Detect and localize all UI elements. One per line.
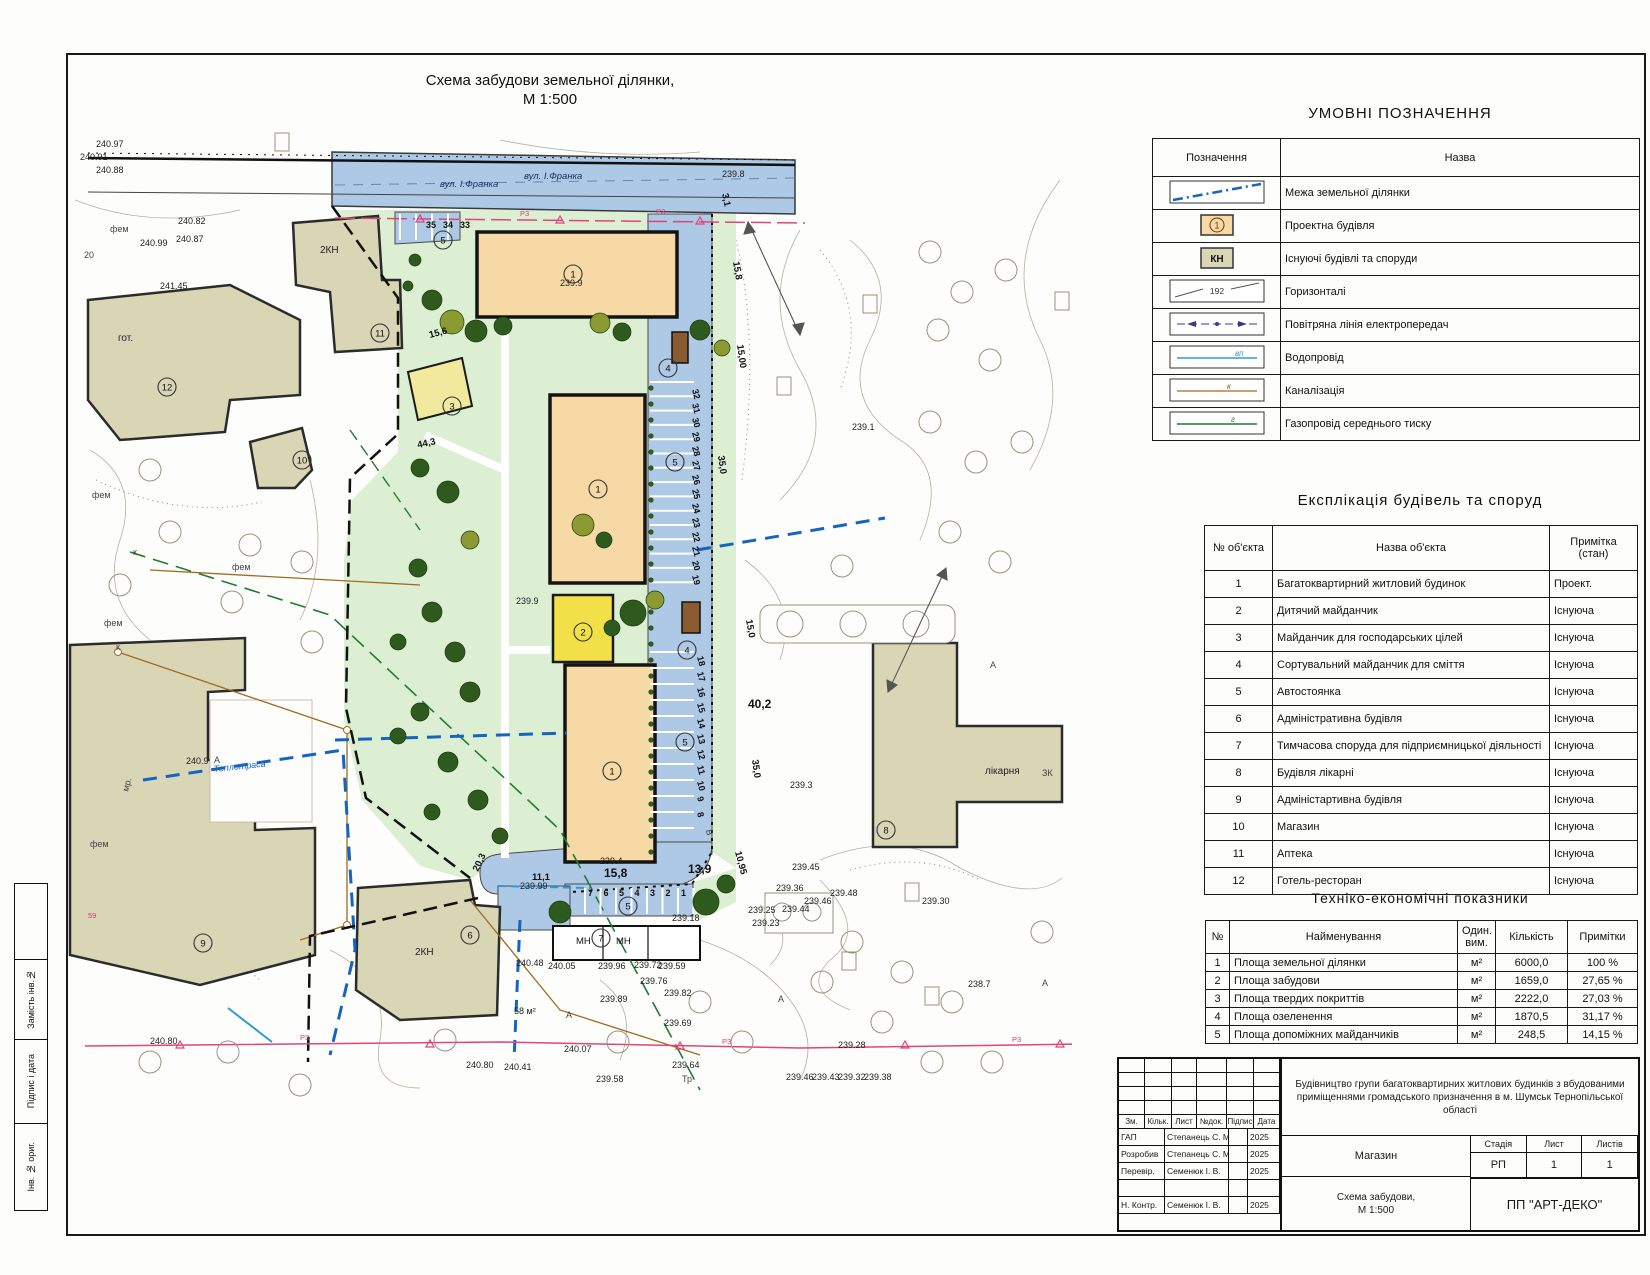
object-marker-number: 4 <box>665 364 670 375</box>
map-label: А <box>566 1010 572 1020</box>
map-label: А <box>778 994 784 1004</box>
map-label: фем <box>232 562 251 572</box>
object-number: 3 <box>1205 625 1273 652</box>
map-label: 240.07 <box>564 1044 592 1054</box>
legend-row-name: Повітряна лінія електропередач <box>1281 309 1640 342</box>
indicator-row: 2 Площа забудови м² 1659,0 27,65 % <box>1206 972 1638 990</box>
sig-name: Семенюк І. В. <box>1165 1163 1229 1180</box>
map-label: 239.4 <box>600 856 623 866</box>
pad-4-waste-b <box>682 602 700 633</box>
indicator-note: 31,17 % <box>1568 1008 1638 1026</box>
sig-signature <box>1229 1163 1248 1180</box>
symbol-existing-building: КН <box>1153 243 1281 276</box>
sig-name: Степанець С. М. <box>1165 1146 1229 1163</box>
object-marker-number: 5 <box>625 902 630 913</box>
map-label: 239.99 <box>520 881 548 891</box>
symbol-water: вп <box>1153 342 1281 375</box>
indicator-number: 5 <box>1206 1026 1230 1044</box>
stamp-label: Підпис і дата <box>26 1054 36 1108</box>
ind-col-name: Найменування <box>1230 921 1458 954</box>
map-label: 239.69 <box>664 1018 692 1028</box>
map-label: 239.38 <box>864 1072 892 1082</box>
map-label: вул. І.Франка <box>524 171 582 182</box>
map-label: 239.3 <box>790 780 813 790</box>
legend-row-name: Газопровід середнього тиску <box>1281 408 1640 441</box>
object-name: Адміністративна будівля <box>1273 706 1550 733</box>
explication-title: Експлікація будівель та споруд <box>1240 492 1600 509</box>
stage-block: Стадія Лист Листів РП 1 1 ПП "АРТ-ДЕКО" <box>1471 1136 1638 1230</box>
drawing-sheet: Замість інв.№ Підпис і дата Інв. № ориг.… <box>0 0 1650 1275</box>
indicator-qty: 1870,5 <box>1496 1008 1568 1026</box>
object-marker-number: 1 <box>570 270 575 281</box>
stall-number: 2 <box>666 888 671 898</box>
object-status: Існуюча <box>1550 679 1638 706</box>
object-marker-number: 9 <box>200 939 205 950</box>
sig-date <box>1248 1180 1280 1197</box>
water-line-2 <box>228 1008 272 1042</box>
sheets-value: 1 <box>1582 1153 1638 1178</box>
sheets-label: Листів <box>1582 1136 1638 1152</box>
title-block-right: Будівництво групи багатоквартирних житло… <box>1282 1059 1638 1230</box>
ind-col-num: № <box>1206 921 1230 954</box>
map-label: 241.45 <box>160 281 188 291</box>
building-12-hotel <box>88 285 300 440</box>
boundary-blue-3 <box>514 920 520 1060</box>
map-label: 240.9 <box>186 756 209 766</box>
explication-row: 4 Сортувальний майданчик для сміття Існу… <box>1205 652 1638 679</box>
building-1c <box>565 665 655 862</box>
indicator-qty: 2222,0 <box>1496 990 1568 1008</box>
object-number: 5 <box>1205 679 1273 706</box>
stage-value: РП <box>1471 1153 1527 1178</box>
indicator-note: 100 % <box>1568 954 1638 972</box>
map-label: 240.87 <box>176 234 204 244</box>
explication-row: 8 Будівля лікарні Існуюча <box>1205 760 1638 787</box>
legend-row-name: Існуючі будівлі та споруди <box>1281 243 1640 276</box>
map-label: 34 <box>443 220 453 230</box>
map-label: 239.43 <box>812 1072 840 1082</box>
sig-date: 2025 <box>1248 1163 1280 1180</box>
object-name: Аптека <box>1273 841 1550 868</box>
map-label: 15,8 <box>604 866 628 880</box>
indicator-number: 3 <box>1206 990 1230 1008</box>
indicator-row: 4 Площа озеленення м² 1870,5 31,17 % <box>1206 1008 1638 1026</box>
map-label: А <box>1042 978 1048 988</box>
map-label: Р3 <box>722 1037 731 1046</box>
sig-role <box>1119 1180 1165 1197</box>
object-marker-number: 1 <box>595 485 600 496</box>
indicator-unit: м² <box>1458 1008 1496 1026</box>
map-label: фем <box>104 618 123 628</box>
ind-col-unit: Один. вим. <box>1458 921 1496 954</box>
object-status: Існуюча <box>1550 652 1638 679</box>
indicator-number: 4 <box>1206 1008 1230 1026</box>
map-label: 239.89 <box>600 994 628 1004</box>
symbol-sewer: к <box>1153 375 1281 408</box>
object-number: 10 <box>1205 814 1273 841</box>
legend-row-name: Водопровід <box>1281 342 1640 375</box>
map-label: фем <box>110 224 129 234</box>
explication-col-num: № об'єкта <box>1205 526 1273 571</box>
sig-header-row: Зм.Кільк.Лист№док.ПідписДата <box>1119 1115 1280 1129</box>
map-label: 239.9 <box>516 596 539 606</box>
explication-row: 9 Адміністартивна будівля Існуюча <box>1205 787 1638 814</box>
object-number: 8 <box>1205 760 1273 787</box>
map-label: Р3 <box>1012 1035 1021 1044</box>
map-label: к <box>116 642 120 652</box>
map-label: 240.88 <box>96 165 124 175</box>
legend-table: Позначення Назва Межа земельної ділянки … <box>1152 138 1640 441</box>
title-block: Зм.Кільк.Лист№док.ПідписДата ГАП Степане… <box>1117 1057 1640 1232</box>
svg-text:1: 1 <box>1214 220 1219 230</box>
ind-col-qty: Кількість <box>1496 921 1568 954</box>
indicator-unit: м² <box>1458 972 1496 990</box>
map-label: 240.05 <box>548 961 576 971</box>
stall-number: 3 <box>650 888 655 898</box>
sig-date: 2025 <box>1248 1197 1280 1214</box>
object-name: Сортувальний майданчик для сміття <box>1273 652 1550 679</box>
map-label: лікарня <box>985 766 1020 777</box>
map-label: фем <box>92 490 111 500</box>
site-plan-map: вул. І.Франкавул. І.Франка239.8240.97240… <box>68 112 1072 1112</box>
object-status: Існуюча <box>1550 598 1638 625</box>
object-marker-number: 1 <box>609 767 614 778</box>
object-number: 9 <box>1205 787 1273 814</box>
object-name: Дитячий майданчик <box>1273 598 1550 625</box>
object-marker-number: 12 <box>162 383 173 394</box>
object-name: Будівля лікарні <box>1273 760 1550 787</box>
map-label: 240.99 <box>140 238 168 248</box>
explication-row: 3 Майданчик для господарських цілей Існу… <box>1205 625 1638 652</box>
map-label: 239.58 <box>596 1074 624 1084</box>
sig-signature <box>1229 1197 1248 1214</box>
object-marker-number: 3 <box>449 402 454 413</box>
stall-number: 7 <box>588 888 593 898</box>
sig-signature <box>1229 1129 1248 1146</box>
object-marker-number: 8 <box>883 826 888 837</box>
object-name: Автостоянка <box>1273 679 1550 706</box>
legend-col-name: Назва <box>1281 139 1640 177</box>
map-label: 2КН <box>415 947 434 958</box>
map-label: МН <box>576 936 591 947</box>
stamp-box-zamist: Замість інв.№ <box>14 959 48 1039</box>
map-label: Р3 <box>656 207 665 216</box>
map-label: 240.80 <box>150 1036 178 1046</box>
indicator-row: 3 Площа твердих покриттів м² 2222,0 27,0… <box>1206 990 1638 1008</box>
indicator-row: 5 Площа допоміжних майданчиків м² 248,5 … <box>1206 1026 1638 1044</box>
object-name: Майданчик для господарських цілей <box>1273 625 1550 652</box>
legend-row-name: Межа земельної ділянки <box>1281 177 1640 210</box>
map-label: 13,9 <box>688 862 712 876</box>
sig-header: Підпис <box>1227 1115 1254 1129</box>
indicator-name: Площа забудови <box>1230 972 1458 990</box>
indicators-title: Техніко-економічні показники <box>1250 890 1590 906</box>
explication-col-name: Назва об'єкта <box>1273 526 1550 571</box>
object-status: Існуюча <box>1550 841 1638 868</box>
stamp-label: Інв. № ориг. <box>26 1142 36 1191</box>
map-label: 239.96 <box>598 961 626 971</box>
legend-row-name: Горизонталі <box>1281 276 1640 309</box>
sheet-value: 1 <box>1527 1153 1583 1178</box>
stamp-box-inv: Інв. № ориг. <box>14 1123 48 1211</box>
svg-text:КН: КН <box>1210 254 1223 265</box>
object-status: Існуюча <box>1550 814 1638 841</box>
map-label: 239.82 <box>664 988 692 998</box>
object-number: 6 <box>1205 706 1273 733</box>
object-status: Проект. <box>1550 571 1638 598</box>
legend-col-symbol: Позначення <box>1153 139 1281 177</box>
sig-rows: ГАП Степанець С. М. 2025 Розробив Степан… <box>1119 1129 1280 1214</box>
indicator-name: Площа твердих покриттів <box>1230 990 1458 1008</box>
indicator-qty: 1659,0 <box>1496 972 1568 990</box>
indicator-unit: м² <box>1458 1026 1496 1044</box>
indicator-qty: 6000,0 <box>1496 954 1568 972</box>
map-label: 240.82 <box>178 216 206 226</box>
map-label: А <box>990 660 996 670</box>
explication-row: 1 Багатоквартирний житловий будинок Прое… <box>1205 571 1638 598</box>
map-label: 239.32 <box>838 1072 866 1082</box>
map-label: 239.36 <box>776 883 804 893</box>
building-8-hospital <box>873 643 1062 847</box>
sig-signature <box>1229 1146 1248 1163</box>
map-label: 239.25 <box>748 905 776 915</box>
map-label: 239.46 <box>786 1072 814 1082</box>
object-marker-number: 5 <box>682 738 687 749</box>
map-label: 40,2 <box>748 697 772 711</box>
object-title: Магазин <box>1282 1136 1470 1177</box>
map-label: 239.30 <box>922 896 950 906</box>
stall-number: 1 <box>681 888 686 898</box>
object-marker-number: 10 <box>297 456 308 467</box>
map-label: 239.76 <box>640 976 668 986</box>
object-marker-number: 5 <box>440 236 445 247</box>
map-label: МН <box>616 936 631 947</box>
explication-row: 11 Аптека Існуюча <box>1205 841 1638 868</box>
indicator-qty: 248,5 <box>1496 1026 1568 1044</box>
object-number: 11 <box>1205 841 1273 868</box>
sig-role: Н. Контр. <box>1119 1197 1165 1214</box>
sig-header: Дата <box>1254 1115 1280 1129</box>
symbol-contour: 192 <box>1153 276 1281 309</box>
object-status: Існуюча <box>1550 625 1638 652</box>
indicator-name: Площа земельної ділянки <box>1230 954 1458 972</box>
object-number: 4 <box>1205 652 1273 679</box>
map-label: 20 <box>84 250 94 260</box>
object-marker-number: 11 <box>375 329 385 340</box>
indicator-unit: м² <box>1458 990 1496 1008</box>
map-label: 238.7 <box>968 979 991 989</box>
map-label: 2КН <box>320 245 339 256</box>
map-label: гот. <box>118 333 133 344</box>
map-label: 58 м² <box>514 1006 536 1016</box>
map-label: 35,0 <box>749 759 762 779</box>
sheet-label: Лист <box>1527 1136 1583 1152</box>
map-label: 15,0 <box>743 619 757 639</box>
stall-number: 6 <box>604 888 609 898</box>
stage-headers: Стадія Лист Листів <box>1471 1136 1638 1153</box>
map-label: 240.48 <box>516 958 544 968</box>
stamp-box-pidpys: Підпис і дата <box>14 1039 48 1123</box>
sheet-title: Схема забудови земельної ділянки, М 1:50… <box>320 72 780 110</box>
indicator-name: Площа озеленення <box>1230 1008 1458 1026</box>
object-number: 7 <box>1205 733 1273 760</box>
stall-number: 5 <box>619 888 624 898</box>
map-label: 240.97 <box>96 139 124 149</box>
object-name: Багатоквартирний житловий будинок <box>1273 571 1550 598</box>
map-label: 239.48 <box>830 888 858 898</box>
object-marker-number: 4 <box>684 646 689 657</box>
indicator-unit: м² <box>1458 954 1496 972</box>
symbol-powerline <box>1153 309 1281 342</box>
map-label: 239.44 <box>782 904 810 914</box>
sig-role: Перевір. <box>1119 1163 1165 1180</box>
company-name: ПП "АРТ-ДЕКО" <box>1471 1179 1638 1230</box>
explication-row: 7 Тимчасова споруда для підприємницької … <box>1205 733 1638 760</box>
object-number: 2 <box>1205 598 1273 625</box>
map-label: 239.1 <box>852 422 875 432</box>
sig-role: Розробив <box>1119 1146 1165 1163</box>
map-label: 33 <box>460 220 470 230</box>
map-label: 240.91 <box>80 152 108 162</box>
stamp-box-empty <box>14 883 48 959</box>
map-label: к <box>133 547 137 557</box>
map-label: Р3 <box>520 209 529 218</box>
indicator-row: 1 Площа земельної ділянки м² 6000,0 100 … <box>1206 954 1638 972</box>
object-name: Тимчасова споруда для підприємницької ді… <box>1273 733 1550 760</box>
object-name: Магазин <box>1273 814 1550 841</box>
legend-row-name: Каналізація <box>1281 375 1640 408</box>
revision-grid <box>1119 1059 1280 1115</box>
indicator-number: 1 <box>1206 954 1230 972</box>
explication-row: 2 Дитячий майданчик Існуюча <box>1205 598 1638 625</box>
map-label: Тр <box>682 1074 692 1084</box>
sig-date: 2025 <box>1248 1129 1280 1146</box>
map-label: 240.80 <box>466 1060 494 1070</box>
indicator-note: 27,65 % <box>1568 972 1638 990</box>
sheet-title-line1: Схема забудови земельної ділянки, <box>320 72 780 91</box>
object-status: Існуюча <box>1550 706 1638 733</box>
svg-text:г: г <box>1231 415 1235 424</box>
explication-row: 10 Магазин Існуюча <box>1205 814 1638 841</box>
map-label: 59 <box>88 911 96 920</box>
stage-label: Стадія <box>1471 1136 1527 1152</box>
object-marker-number: 2 <box>580 628 585 639</box>
object-status: Існуюча <box>1550 760 1638 787</box>
legend-title: УМОВНІ ПОЗНАЧЕННЯ <box>1245 105 1555 122</box>
sig-name: Семенюк І. В. <box>1165 1197 1229 1214</box>
map-label: ЗК <box>1042 768 1053 778</box>
legend-row-name: Проектна будівля <box>1281 210 1640 243</box>
object-marker-number: 6 <box>467 931 472 942</box>
title-block-signatures: Зм.Кільк.Лист№док.ПідписДата ГАП Степане… <box>1119 1059 1282 1230</box>
symbol-project-building: 1 <box>1153 210 1281 243</box>
map-label: 239.28 <box>838 1040 866 1050</box>
object-number: 1 <box>1205 571 1273 598</box>
indicator-name: Площа допоміжних майданчиків <box>1230 1026 1458 1044</box>
explication-col-note: Примітка (стан) <box>1550 526 1638 571</box>
sig-header: Кільк. <box>1145 1115 1172 1129</box>
sheet-title-line2: М 1:500 <box>320 91 780 110</box>
sig-name <box>1165 1180 1229 1197</box>
map-label: 239.64 <box>672 1060 700 1070</box>
map-label: 239.23 <box>752 918 780 928</box>
sig-role: ГАП <box>1119 1129 1165 1146</box>
explication-row: 5 Автостоянка Існуюча <box>1205 679 1638 706</box>
indicator-note: 14,15 % <box>1568 1026 1638 1044</box>
map-label: 239.18 <box>672 913 700 923</box>
building-1a <box>477 232 677 317</box>
symbol-boundary-line <box>1153 177 1281 210</box>
sig-header: №док. <box>1197 1115 1227 1129</box>
doc-title: Схема забудови,М 1:500 <box>1282 1177 1470 1230</box>
object-marker-number: 5 <box>672 458 677 469</box>
sig-header: Зм. <box>1119 1115 1145 1129</box>
stamp-label: Замість інв.№ <box>26 970 36 1029</box>
indicators-table: № Найменування Один. вим. Кількість Прим… <box>1205 920 1638 1044</box>
map-label: 239.45 <box>792 862 820 872</box>
indicator-number: 2 <box>1206 972 1230 990</box>
object-marker-number: 7 <box>598 934 603 945</box>
indicator-note: 27,03 % <box>1568 990 1638 1008</box>
stage-values: РП 1 1 <box>1471 1153 1638 1179</box>
object-status: Існуюча <box>1550 733 1638 760</box>
map-label: 15,00 <box>734 344 748 369</box>
explication-row: 6 Адміністративна будівля Існуюча <box>1205 706 1638 733</box>
left-stamp-strip: Замість інв.№ Підпис і дата Інв. № ориг. <box>14 883 48 1213</box>
map-label: вул. І.Франка <box>440 179 498 190</box>
sig-name: Степанець С. М. <box>1165 1129 1229 1146</box>
map-label: Р3 <box>300 1033 309 1042</box>
map-label: 239.8 <box>722 169 745 179</box>
sig-header: Лист <box>1172 1115 1197 1129</box>
explication-table: № об'єкта Назва об'єкта Примітка (стан) … <box>1204 525 1638 895</box>
map-label: 240.41 <box>504 1062 532 1072</box>
object-name: Адміністартивна будівля <box>1273 787 1550 814</box>
map-label: 239.59 <box>658 961 686 971</box>
svg-text:192: 192 <box>1209 286 1223 296</box>
svg-text:вп: вп <box>1235 349 1244 358</box>
stall-number: 4 <box>635 888 640 898</box>
map-label: фем <box>90 839 109 849</box>
object-status: Існуюча <box>1550 787 1638 814</box>
pad-4-waste-a <box>672 332 688 363</box>
ind-col-note: Примітки <box>1568 921 1638 954</box>
sig-date: 2025 <box>1248 1146 1280 1163</box>
sig-signature <box>1229 1180 1248 1197</box>
lawn-sliver <box>712 214 736 868</box>
project-name: Будівництво групи багатоквартирних житло… <box>1282 1059 1638 1136</box>
map-label: 35 <box>426 220 436 230</box>
symbol-gas: г <box>1153 408 1281 441</box>
